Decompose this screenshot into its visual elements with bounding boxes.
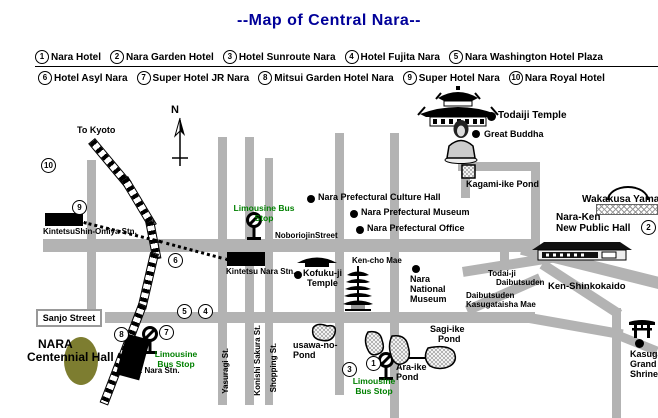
circled-number: 7 bbox=[137, 71, 151, 85]
pref-culture-hall-label: Nara Prefectural Culture Hall bbox=[318, 192, 441, 202]
usawa-line: usawa-no- bbox=[293, 340, 338, 350]
bus-stop-line: Bus Stop bbox=[148, 360, 204, 370]
kintetsu-nara-station-label: Kintetsu Nara Stn. bbox=[226, 268, 295, 277]
poi-dot bbox=[294, 271, 302, 279]
page-title: --Map of Central Nara-- bbox=[0, 12, 658, 30]
naraken-hall-line: New Public Hall bbox=[556, 223, 630, 234]
sagi-line: Sagi-ike bbox=[430, 324, 465, 334]
limousine-bus-stop-label: Limousine Bus Stop bbox=[148, 350, 204, 369]
north-arrow-icon bbox=[172, 116, 188, 170]
north-label: N bbox=[171, 104, 179, 116]
kencho-mae-label: Ken-cho Mae bbox=[352, 257, 402, 266]
legend-item: 8Mitsui Garden Hotel Nara bbox=[258, 71, 393, 85]
museum-line: Nara bbox=[410, 274, 447, 284]
legend-label: Super Hotel JR Nara bbox=[153, 73, 250, 84]
to-kyoto-label: To Kyoto bbox=[77, 125, 115, 135]
limousine-bus-stop-label: Limousine Bus Stop bbox=[346, 377, 402, 396]
legend-label: Nara Garden Hotel bbox=[126, 52, 214, 63]
daibutsuden-kasugataisha-mae-label: Daibutsuden Kasugataisha Mae bbox=[466, 292, 536, 310]
kasuga-line: Shrine bbox=[630, 369, 658, 379]
marker-hotel-1: 1 bbox=[366, 356, 381, 371]
map-of-central-nara: --Map of Central Nara-- 1Nara Hotel 2Nar… bbox=[0, 0, 658, 418]
great-buddha-icon bbox=[442, 118, 480, 164]
kagami-pond-icon bbox=[461, 164, 476, 179]
legend-item: 4Hotel Fujita Nara bbox=[345, 50, 440, 64]
kintetsu-nara-station-block bbox=[227, 252, 265, 266]
sagi-pond-label: Sagi-ike Pond bbox=[430, 324, 465, 344]
todaiji-daibutsuden-label: Todai-ji Daibutsuden bbox=[488, 270, 544, 288]
limousine-bus-stop-label: Limousine Bus Stop bbox=[228, 204, 300, 223]
legend-label: Nara Hotel bbox=[51, 52, 101, 63]
pref-office-label: Nara Prefectural Office bbox=[367, 223, 465, 233]
legend-label: Hotel Asyl Nara bbox=[54, 73, 128, 84]
circled-number: 8 bbox=[258, 71, 272, 85]
poi-dot bbox=[635, 339, 644, 348]
legend-item: 2Nara Garden Hotel bbox=[110, 50, 214, 64]
poi-dot bbox=[472, 130, 480, 138]
legend-item: 1Nara Hotel bbox=[35, 50, 101, 64]
noborioji-street-label: NoboriojinStreet bbox=[275, 232, 338, 241]
sanjo-street-label: Sanjo Street bbox=[43, 313, 96, 323]
daibutsuden-line: Daibutsuden bbox=[496, 279, 544, 288]
kasuga-shrine-label: Kasuga Grand Shrine bbox=[630, 349, 658, 379]
circled-number: 4 bbox=[345, 50, 359, 64]
hotel-legend-row-2: 6Hotel Asyl Nara 7Super Hotel JR Nara 8M… bbox=[38, 71, 658, 85]
marker-hotel-8: 8 bbox=[114, 327, 129, 342]
bus-stop-line: Bus Stop bbox=[346, 387, 402, 397]
bus-stop-line: Stop bbox=[228, 214, 300, 224]
torii-gate-icon bbox=[628, 318, 656, 340]
poi-dot bbox=[356, 226, 364, 234]
marker-hotel-5: 5 bbox=[177, 304, 192, 319]
marker-hotel-6: 6 bbox=[168, 253, 183, 268]
legend-item: 9Super Hotel Nara bbox=[403, 71, 500, 85]
circled-number: 10 bbox=[509, 71, 523, 85]
road-sanjo-extension bbox=[528, 313, 623, 339]
road-kagami-loop-east bbox=[531, 162, 540, 252]
museum-line: National bbox=[410, 284, 447, 294]
legend-label: Nara Royal Hotel bbox=[525, 73, 605, 84]
sagi-line: Pond bbox=[438, 334, 465, 344]
circled-number: 3 bbox=[223, 50, 237, 64]
legend-label: Nara Washington Hotel Plaza bbox=[465, 52, 603, 63]
konishi-sakura-street-label: Konishi Sakura St. bbox=[253, 325, 262, 396]
poi-dot bbox=[487, 112, 496, 121]
marker-hotel-2: 2 bbox=[641, 220, 656, 235]
poi-dot bbox=[307, 195, 315, 203]
yasuragi-street-label: Yasuragi St. bbox=[221, 348, 230, 394]
public-hall-building-icon bbox=[532, 240, 632, 264]
legend-item: 5Nara Washington Hotel Plaza bbox=[449, 50, 603, 64]
legend-label: Hotel Sunroute Nara bbox=[239, 52, 336, 63]
shopping-street-label: Shopping St. bbox=[269, 343, 278, 392]
pref-museum-label: Nara Prefectural Museum bbox=[361, 207, 470, 217]
ara-line: Pond bbox=[396, 372, 427, 382]
museum-line: Museum bbox=[410, 294, 447, 304]
road-vertical-west bbox=[87, 160, 96, 324]
circled-number: 2 bbox=[110, 50, 124, 64]
poi-dot bbox=[412, 265, 420, 273]
todaiji-temple-label: Todaiji Temple bbox=[498, 110, 567, 121]
five-story-pagoda-icon bbox=[341, 266, 375, 312]
poi-dot bbox=[350, 210, 358, 218]
marker-hotel-10: 10 bbox=[41, 158, 56, 173]
circled-number: 6 bbox=[38, 71, 52, 85]
road-vertical-east bbox=[612, 308, 621, 418]
great-buddha-label: Great Buddha bbox=[484, 129, 544, 139]
marker-hotel-4: 4 bbox=[198, 304, 213, 319]
kagami-pond-label: Kagami-ike Pond bbox=[466, 179, 539, 189]
kofukuji-line: Kofuku-ji bbox=[303, 268, 342, 278]
kasugataisha-line: Kasugataisha Mae bbox=[466, 301, 536, 310]
ara-pond-label: Ara-ike Pond bbox=[396, 362, 427, 382]
nara-national-museum-label: Nara National Museum bbox=[410, 274, 447, 304]
usawa-pond-label: usawa-no- Pond bbox=[293, 340, 338, 360]
legend-item: 3Hotel Sunroute Nara bbox=[223, 50, 336, 64]
jr-railway-segment bbox=[137, 252, 159, 310]
naraken-hall-label: Nara-Ken New Public Hall bbox=[556, 212, 630, 234]
shin-omiya-station-block bbox=[45, 213, 83, 226]
legend-item: 7Super Hotel JR Nara bbox=[137, 71, 250, 85]
legend-label: Super Hotel Nara bbox=[419, 73, 500, 84]
circled-number: 5 bbox=[449, 50, 463, 64]
ara-line: Ara-ike bbox=[396, 362, 427, 372]
kofukuji-line: Temple bbox=[307, 278, 342, 288]
wakakusa-yama-label: Wakakusa Yama bbox=[582, 194, 658, 205]
kasuga-line: Kasuga bbox=[630, 349, 658, 359]
shin-omiya-station-label: KintetsuShin-Omiya Stn. bbox=[43, 228, 137, 237]
kofukuji-temple-icon bbox=[297, 254, 337, 268]
hotel-legend-row-1: 1Nara Hotel 2Nara Garden Hotel 3Hotel Su… bbox=[35, 50, 658, 64]
legend-label: Hotel Fujita Nara bbox=[361, 52, 440, 63]
sanjo-street-box: Sanjo Street bbox=[36, 309, 102, 327]
marker-hotel-9: 9 bbox=[72, 200, 87, 215]
legend-item: 6Hotel Asyl Nara bbox=[38, 71, 128, 85]
marker-hotel-3: 3 bbox=[342, 362, 357, 377]
legend-item: 10Nara Royal Hotel bbox=[509, 71, 605, 85]
usawa-line: Pond bbox=[293, 350, 338, 360]
marker-hotel-7: 7 bbox=[159, 325, 174, 340]
kofukuji-temple-label: Kofuku-ji Temple bbox=[303, 268, 342, 288]
naraken-hall-line: Nara-Ken bbox=[556, 212, 630, 223]
legend-divider bbox=[35, 66, 658, 67]
circled-number: 1 bbox=[35, 50, 49, 64]
kasuga-line: Grand bbox=[630, 359, 658, 369]
legend-label: Mitsui Garden Hotel Nara bbox=[274, 73, 393, 84]
circled-number: 9 bbox=[403, 71, 417, 85]
ken-shinkokaido-label: Ken-Shinkokaido bbox=[548, 282, 626, 293]
nara-centennial-hall-label-line2: Centennial Hall bbox=[27, 351, 114, 364]
